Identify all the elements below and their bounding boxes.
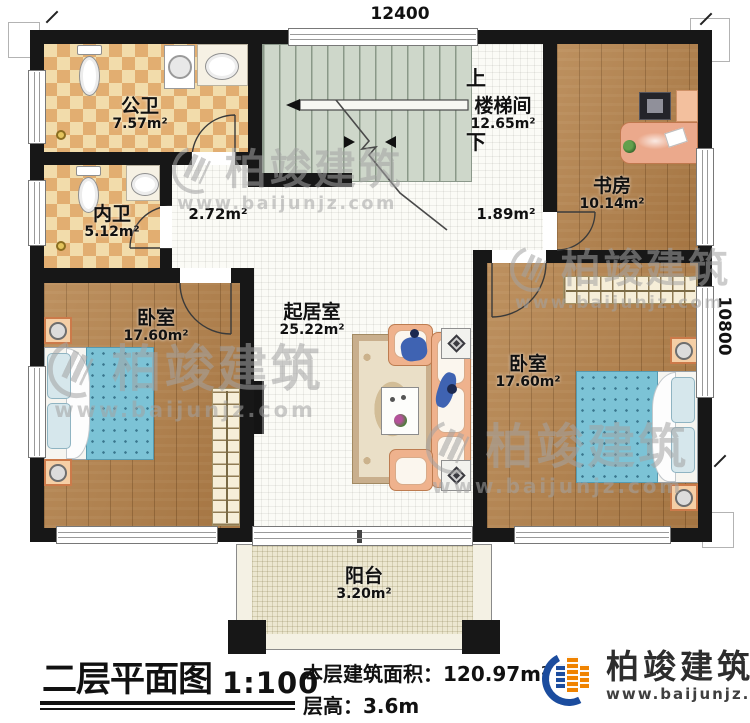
floor-plan-canvas: 12400 10800 公卫 7.57m² 内卫 5.12m² 楼梯间 12.6…: [0, 0, 750, 723]
sliding-door-handle: [357, 530, 362, 543]
room-name: 内卫: [93, 204, 131, 225]
room-label-study: 书房 10.14m²: [579, 176, 644, 212]
dimension-right: 10800: [714, 294, 734, 358]
window: [28, 70, 46, 144]
title-underline: [40, 701, 295, 705]
window: [28, 180, 46, 246]
brand-name: 柏竣建筑: [606, 650, 750, 685]
room-label-inner-bath: 内卫 5.12m²: [84, 204, 139, 240]
room-area: 3.20m²: [336, 587, 391, 602]
door-opening: [492, 250, 546, 263]
room-area: 25.22m²: [279, 323, 344, 338]
room-area: 17.60m²: [123, 329, 188, 344]
room-name: 公卫: [121, 96, 159, 117]
brand-logo: 柏竣建筑 www.baijunjz.com: [540, 650, 750, 708]
title-underline: [40, 708, 295, 710]
floor-area-label: 本层建筑面积：: [303, 662, 443, 686]
brand-logo-icon: [540, 650, 598, 708]
door-opening: [543, 212, 557, 250]
window: [696, 148, 714, 246]
brand-site: www.baijunjz.com: [606, 685, 750, 703]
floor-area-value: 120.97m²: [443, 662, 550, 686]
room-name: 书房: [593, 176, 631, 197]
window: [696, 286, 714, 398]
window: [514, 526, 671, 544]
room-area: 10.14m²: [579, 197, 644, 212]
room-area: 5.12m²: [84, 225, 139, 240]
page-title: 二层平面图: [42, 651, 212, 702]
logo-building-bar: [556, 664, 565, 688]
stairs-up-label: 上: [466, 62, 486, 91]
room-name: 起居室: [283, 302, 340, 323]
room-area: 7.57m²: [112, 117, 167, 132]
room-label-bedroom-right: 卧室 17.60m²: [495, 354, 560, 390]
room-label-balcony: 阳台 3.20m²: [336, 566, 391, 602]
floor-height-label: 层高：: [303, 694, 363, 718]
dimension-top: 12400: [340, 4, 460, 24]
passage-area-left: 2.72m²: [188, 205, 247, 223]
room-label-living: 起居室 25.22m²: [279, 302, 344, 338]
room-area: 17.60m²: [495, 375, 560, 390]
stairs-down-label: 下: [466, 126, 486, 155]
floor-height-value: 3.6m: [363, 694, 419, 718]
room-label-bedroom-left: 卧室 17.60m²: [123, 308, 188, 344]
sliding-door: [252, 526, 473, 546]
logo-building-bar: [567, 656, 578, 692]
room-name: 阳台: [345, 566, 383, 587]
room-name: 卧室: [509, 354, 547, 375]
room-label-public-bath: 公卫 7.57m²: [112, 96, 167, 132]
door-opening: [160, 206, 172, 248]
room-name: 楼梯间: [474, 96, 531, 117]
window: [56, 526, 218, 544]
door-opening: [192, 152, 235, 165]
window: [288, 28, 478, 46]
room-name: 卧室: [137, 308, 175, 329]
window: [28, 366, 46, 458]
door-opening: [180, 268, 231, 283]
logo-building-bar: [580, 664, 589, 688]
floor-area-line: 本层建筑面积：120.97m²: [303, 658, 550, 687]
floor-height-line: 层高：3.6m: [303, 690, 419, 719]
passage-area-right: 1.89m²: [476, 205, 535, 223]
